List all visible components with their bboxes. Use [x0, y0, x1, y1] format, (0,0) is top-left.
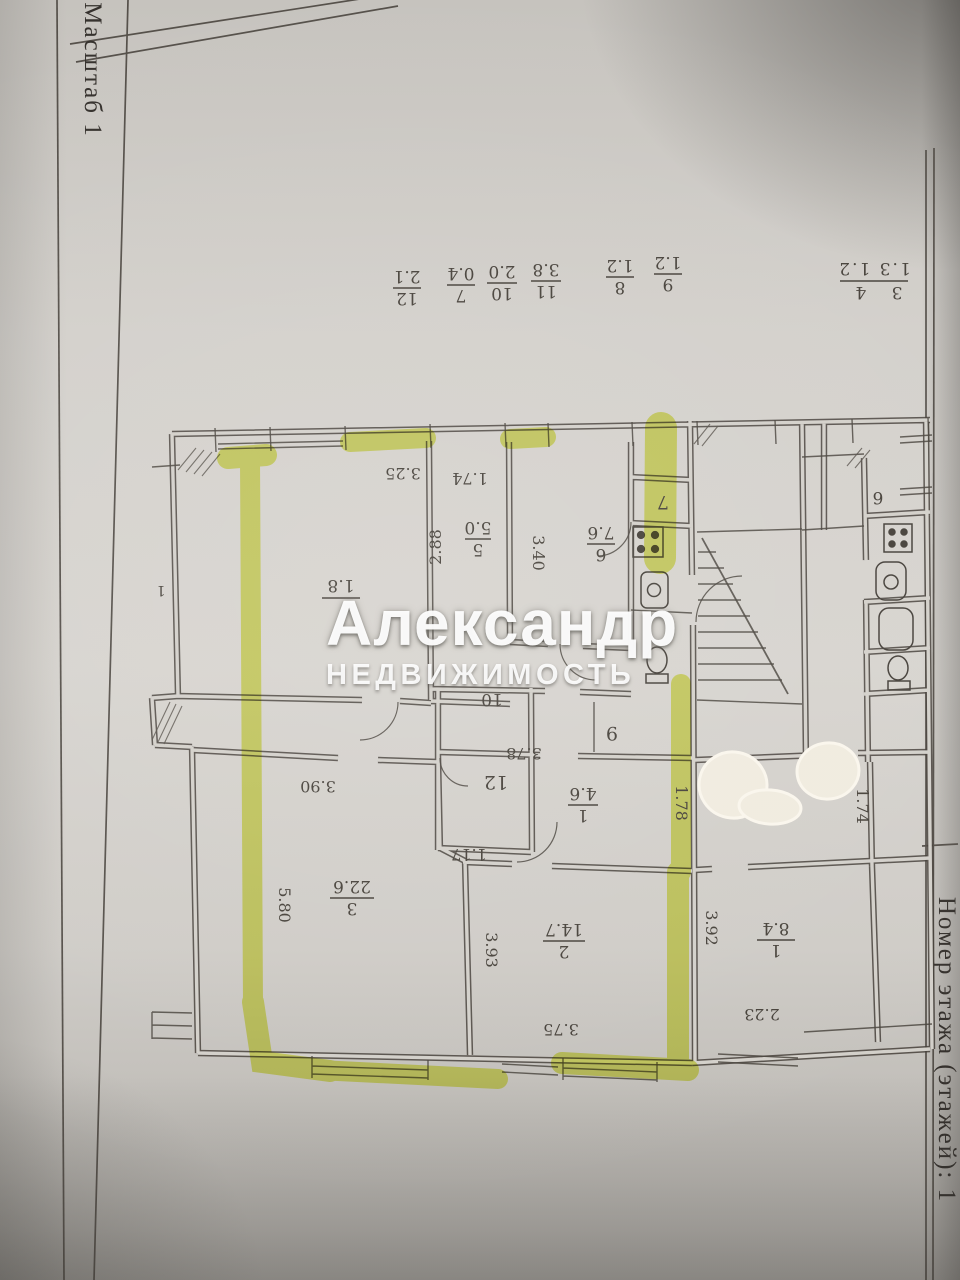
room-number: 6 [596, 544, 607, 564]
room-label-5: 5 5.0 [464, 517, 491, 559]
dim-3-92: 3.92 [702, 910, 721, 946]
dim-2-23: 2.23 [744, 1005, 780, 1024]
toilet-icon [646, 647, 668, 683]
room-label-1-right: 1 8.4 [757, 918, 795, 960]
room-number: 1 [578, 805, 589, 825]
bath-icon [879, 608, 913, 650]
dim-3-75: 3.75 [543, 1020, 579, 1039]
strip-fraction: 10 2.0 [487, 261, 517, 303]
scale-label: Масштаб 1 [79, 2, 106, 137]
strip-fraction: 7 0.4 [447, 263, 475, 305]
dim-1-17: 1.17 [451, 845, 487, 864]
room-label-7: 7 [657, 491, 669, 513]
room-area: 0.4 [447, 263, 474, 283]
room-number: 7 [456, 285, 467, 305]
room-area: 1.2 [654, 252, 681, 272]
room-number: 11 [535, 281, 557, 301]
room-area: 8.4 [762, 918, 789, 938]
room-number: 10 [491, 283, 513, 303]
room-label-6-right: 6 [873, 487, 884, 507]
room-number: 8 [615, 277, 626, 297]
toilet-icon-right [888, 656, 910, 690]
dim-3-25: 3.25 [385, 464, 421, 483]
room-area: 5.0 [464, 517, 491, 537]
dim-3-93: 3.93 [482, 932, 501, 968]
room-area: 2.1 [393, 266, 420, 286]
highlighter-stroke [350, 438, 426, 442]
room-label-3: 3 22.6 [330, 876, 374, 918]
stove-icon-right [884, 524, 912, 552]
room-label-6-kitchen: 6 7.6 [587, 522, 615, 564]
room-area: 2.0 [488, 261, 515, 281]
floor-plan-photo: Масштаб 1 Номер этажа (этажей): 1 12 2.1… [0, 0, 960, 1280]
strip-fraction: 8 1.2 [606, 255, 634, 297]
dim-1-74-top: 1.74 [452, 469, 488, 488]
room-area: 7.6 [587, 522, 614, 542]
room-area: 4.6 [569, 783, 596, 803]
room-area-summary-strip: 12 2.1 7 0.4 10 2.0 11 3.8 8 1.2 9 1.2 [393, 252, 911, 308]
room-label-12: 12 [484, 771, 508, 793]
strip-fraction: 9 1.2 [654, 252, 682, 294]
highlighter-stroke [250, 460, 253, 1005]
dim-1-78: 1.78 [672, 785, 691, 821]
room-label-10: 10 [481, 689, 503, 709]
room-area: 1.8 [327, 575, 354, 595]
plan-walls [152, 420, 932, 1063]
dim-2-88: 2.88 [426, 529, 445, 565]
dim-3-40: 3.40 [529, 535, 548, 571]
highlighter-stroke [510, 437, 546, 439]
strip-fraction: 11 3.8 [531, 259, 561, 301]
room-number: 5 [473, 539, 484, 559]
highlighter-stroke [318, 1070, 498, 1079]
room-label-2: 2 14.7 [543, 919, 585, 961]
room-numbers: 3 4 [845, 282, 902, 302]
floor-number-label: Номер этажа (этажей): 1 [933, 897, 960, 1203]
edge-mark-1: 1 [157, 582, 166, 598]
strip-corner-fraction: 3 4 1.3 1.2 [837, 258, 910, 302]
dim-3-78: 3.78 [506, 744, 542, 763]
room-area: 3.8 [532, 259, 559, 279]
sink-icon-right [876, 562, 906, 600]
room-number: 12 [396, 288, 418, 308]
room-number: 1 [771, 940, 782, 960]
room-label-1-hall: 1 4.6 [568, 783, 598, 825]
room-label-a: 1.8 [322, 575, 360, 598]
room-number: 3 [347, 898, 358, 918]
room-number: 2 [559, 941, 570, 961]
whiteout-blobs [693, 739, 863, 826]
sink-icon [641, 572, 668, 608]
room-area: 14.7 [545, 919, 583, 939]
room-areas: 1.3 1.2 [837, 258, 910, 278]
room-number: 9 [663, 274, 674, 294]
room-area: 1.2 [606, 255, 633, 275]
room-area: 22.6 [333, 876, 371, 896]
dim-1-74-right: 1.74 [853, 788, 872, 824]
whiteout-blob [738, 788, 802, 826]
floor-plan-drawing: Масштаб 1 Номер этажа (этажей): 1 12 2.1… [0, 0, 960, 1280]
strip-fraction: 12 2.1 [393, 266, 421, 308]
dim-3-90: 3.90 [300, 777, 336, 796]
room-label-9: 9 [606, 722, 618, 744]
dim-5-80: 5.80 [275, 887, 294, 923]
